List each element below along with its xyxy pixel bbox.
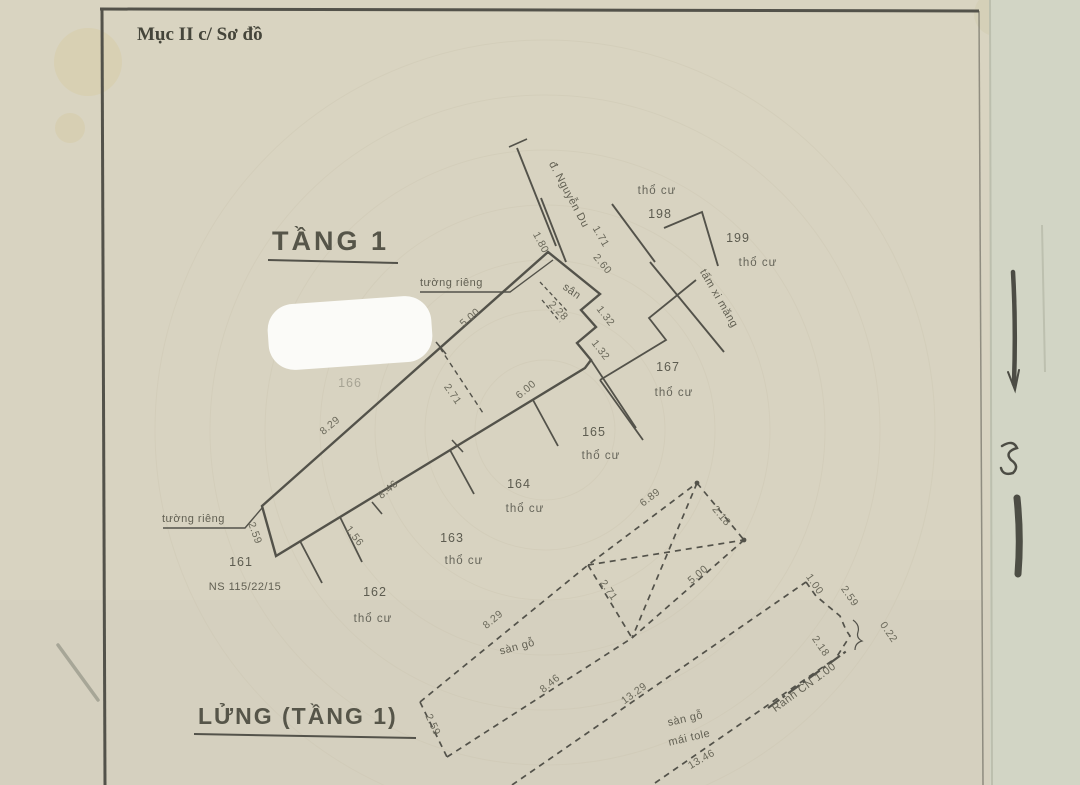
paper-stain <box>54 28 122 96</box>
parcel-162: 162 <box>363 585 387 599</box>
landtype-199: thổ cư <box>739 257 778 269</box>
parcel-164: 164 <box>507 477 531 491</box>
parcel-198: 198 <box>648 207 672 221</box>
parcel-166-faint: 166 <box>338 376 362 390</box>
corner-dot <box>695 481 700 486</box>
landtype-165: thổ cư <box>582 450 621 462</box>
parcel-199: 199 <box>726 231 750 245</box>
landtype-164: thổ cư <box>506 503 545 515</box>
scanned-document-page: Mục II c/ Sơ đồ TẦNG 1 <box>0 0 1080 785</box>
mezzanine-title: LỬNG (TẦNG 1) <box>198 701 398 729</box>
landtype-162: thổ cư <box>354 613 393 625</box>
parcel-161: 161 <box>229 555 253 569</box>
landtype-198: thổ cư <box>638 185 677 197</box>
redaction-blob <box>266 294 434 371</box>
house-number: NS 115/22/15 <box>209 581 281 593</box>
parcel-165: 165 <box>582 425 606 439</box>
landtype-163: thổ cư <box>445 555 484 567</box>
wall-label-top: tường riêng <box>420 277 483 289</box>
section-header: Mục II c/ Sơ đồ <box>137 24 263 45</box>
paper-texture <box>0 0 1080 785</box>
adjacent-page-strip <box>990 0 1080 785</box>
floor1-title: TẦNG 1 <box>272 225 389 256</box>
parcel-167: 167 <box>656 360 680 374</box>
parcel-163: 163 <box>440 531 464 545</box>
corner-dot <box>742 538 747 543</box>
wall-label-left: tường riêng <box>162 513 225 525</box>
landtype-167: thổ cư <box>655 387 694 399</box>
